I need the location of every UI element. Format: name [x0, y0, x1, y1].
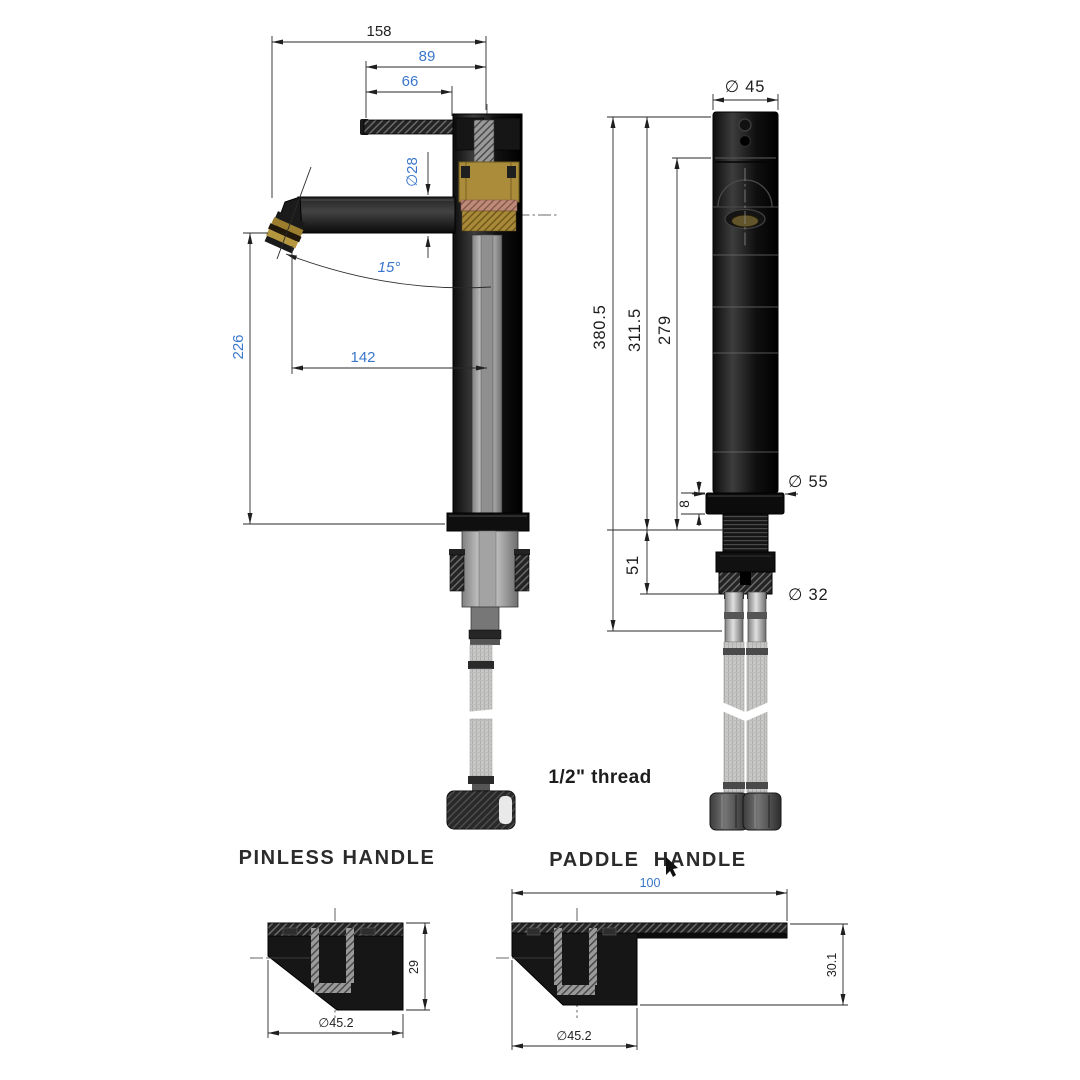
paddle-dim-dia45-2: ∅45.2: [556, 1029, 591, 1043]
paddle-lever-underside: [637, 933, 787, 937]
shank-rod: [479, 531, 496, 607]
pinless-handle-view: PINLESS HANDLE 29 ∅45.2: [239, 847, 436, 1038]
dim-dia32: ∅ 32: [788, 586, 829, 604]
washer-right: [514, 549, 530, 555]
hose-band: [746, 782, 768, 789]
pinless-stem-wall: [346, 928, 354, 983]
dim-380-5: 380.5: [591, 304, 609, 349]
locknut: [716, 552, 775, 572]
dim-158: 158: [366, 23, 391, 40]
dim-dia28: ∅28: [404, 157, 421, 187]
hose-tail: [472, 784, 490, 791]
hose-band: [723, 648, 745, 655]
handle-pin: [740, 136, 751, 147]
dim-89: 89: [419, 48, 436, 65]
dim-66: 66: [402, 73, 419, 90]
hose-segment: [470, 669, 492, 713]
cartridge-seal-left: [461, 166, 470, 178]
dim-100: 100: [640, 876, 661, 890]
shank-slot: [740, 572, 751, 585]
dim-dia55: ∅ 55: [788, 473, 829, 491]
pinless-handle-title: PINLESS HANDLE: [239, 847, 436, 869]
hose-band: [470, 639, 500, 645]
dim-29: 29: [407, 960, 421, 974]
threaded-shank-front: [723, 514, 768, 552]
hex-nut-left: [710, 793, 748, 830]
hose-band: [746, 648, 768, 655]
handle-pin-hole: [739, 119, 751, 131]
hose-band: [468, 776, 494, 784]
hose-end-highlight: [499, 796, 512, 824]
pinless-dim-dia45-2: ∅45.2: [318, 1016, 353, 1030]
inner-rod: [481, 235, 493, 515]
mounting-nut-right: [515, 555, 529, 591]
cartridge-copper-ring: [461, 200, 517, 211]
paddle-top-section: [512, 923, 787, 933]
technical-drawing-page: 158 89 66 ∅28 15° 226 142: [0, 0, 1080, 1080]
dim-142: 142: [350, 349, 375, 366]
paddle-stem-wall: [589, 928, 597, 985]
faucet-dimension-drawing: 158 89 66 ∅28 15° 226 142: [0, 0, 1080, 1080]
dim-dia45: ∅ 45: [725, 78, 766, 96]
paddle-stem-wall: [554, 928, 562, 985]
dim-311-5: 311.5: [626, 308, 644, 352]
front-body: [713, 112, 778, 493]
nipple-band: [747, 612, 767, 619]
dim-51: 51: [624, 555, 642, 575]
pinless-stem-wall: [311, 928, 319, 983]
hex-nut-right: [743, 793, 781, 830]
lever-section: [364, 120, 456, 134]
pinless-seat: [283, 928, 297, 935]
dim-angle-15: 15°: [378, 259, 401, 276]
paddle-handle-view: PADDLE HANDLE 100 30.1 ∅45.2: [496, 849, 848, 1050]
dim-226: 226: [230, 334, 247, 359]
cartridge-seal-right: [507, 166, 516, 178]
spout: [298, 197, 455, 233]
front-view: ∅ 45 380.5 311.5 279 51 8 ∅ 55 ∅ 32 1/2"…: [548, 78, 828, 830]
cartridge-brass-nut: [462, 211, 516, 231]
hose-connector: [471, 607, 499, 632]
washer-left: [449, 549, 465, 555]
hose-band: [468, 661, 494, 669]
side-view: 158 89 66 ∅28 15° 226 142: [230, 23, 558, 829]
hose-segment: [470, 719, 492, 776]
hose-band: [723, 782, 745, 789]
dim-30-1: 30.1: [825, 953, 839, 977]
hose-band: [469, 630, 501, 639]
pinless-stem-base: [314, 983, 351, 993]
paddle-stem-base: [557, 985, 595, 995]
paddle-seat: [603, 928, 616, 935]
head-cap-right: [492, 118, 520, 150]
mounting-nut-left: [450, 555, 464, 591]
nipple-band: [724, 612, 744, 619]
pinless-seat: [361, 928, 375, 935]
dim-8: 8: [676, 500, 692, 508]
paddle-handle-title: PADDLE HANDLE: [549, 849, 746, 871]
paddle-seat: [527, 928, 540, 935]
thread-label: 1/2" thread: [548, 767, 651, 788]
dim-279: 279: [656, 315, 674, 345]
hose-segment: [470, 645, 492, 661]
